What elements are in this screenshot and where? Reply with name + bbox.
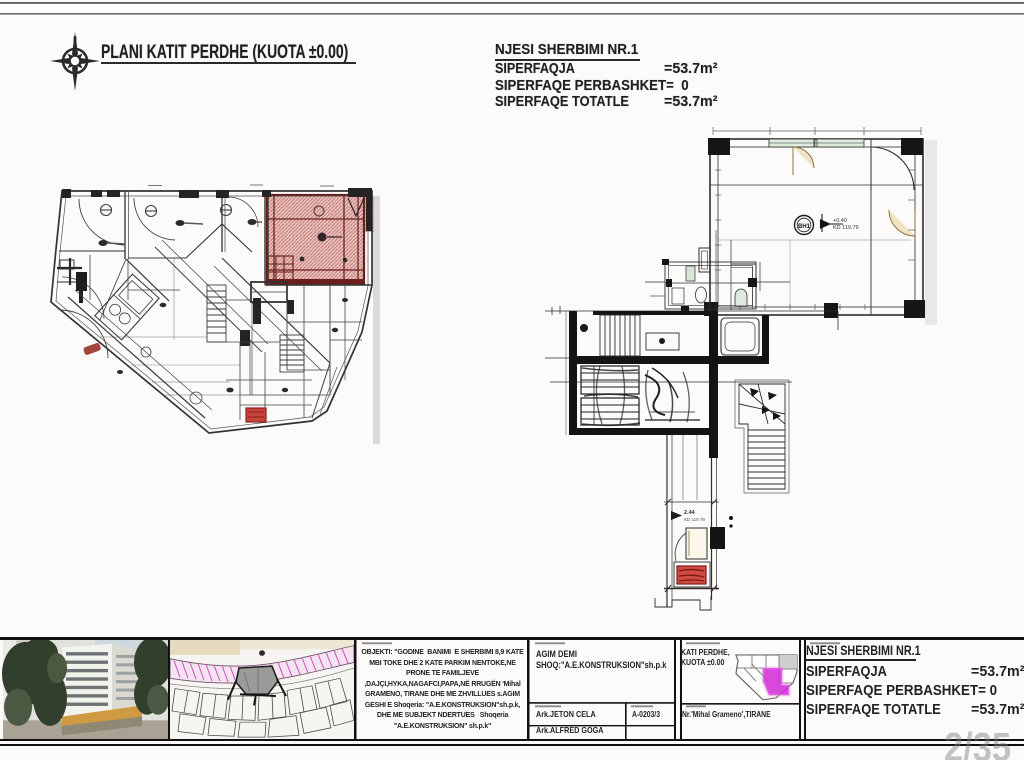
svg-text:+0.40: +0.40: [833, 218, 847, 224]
svg-text:KD 119.79: KD 119.79: [833, 225, 859, 231]
svg-text:BH1: BH1: [798, 224, 811, 230]
svg-text:KD 119.79: KD 119.79: [684, 517, 705, 522]
svg-text:2.44: 2.44: [684, 510, 696, 516]
